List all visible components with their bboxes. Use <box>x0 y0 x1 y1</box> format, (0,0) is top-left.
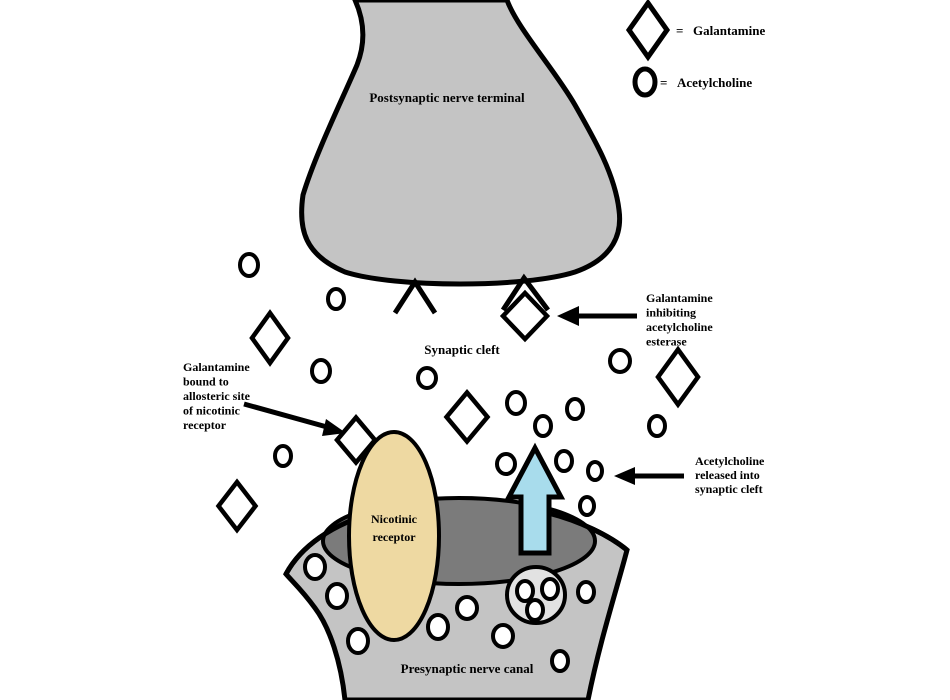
galantamine-icon <box>447 393 488 442</box>
legend-acetylcholine-label: Acetylcholine <box>677 75 752 90</box>
annotation-acetylcholine-released: Acetylcholinereleased intosynaptic cleft <box>614 454 765 496</box>
acetylcholine-icon <box>418 368 436 388</box>
acetylcholine-icon <box>497 454 515 474</box>
acetylcholine-icon <box>428 615 448 639</box>
synaptic-cleft-label: Synaptic cleft <box>424 342 500 357</box>
arrow-head-left-icon <box>614 467 635 485</box>
postsynaptic-terminal-label: Postsynaptic nerve terminal <box>369 90 525 105</box>
annotation-arrow-line <box>244 404 327 427</box>
acetylcholine-icon <box>327 584 347 608</box>
galantamine-diamond-icon <box>629 3 667 57</box>
galantamine-icon <box>252 313 288 363</box>
acetylcholine-icon <box>527 600 543 620</box>
acetylcholine-icon <box>240 254 258 276</box>
acetylcholine-oval-icon <box>635 69 655 95</box>
annotation-galantamine-allosteric-text: Galantaminebound toallosteric siteof nic… <box>183 360 251 432</box>
acetylcholine-icon <box>649 416 665 436</box>
acetylcholine-icon <box>493 625 513 647</box>
arrow-head-left-icon <box>557 306 579 326</box>
acetylcholine-icon <box>552 651 568 671</box>
acetylcholine-icon <box>312 360 330 382</box>
acetylcholine-icon <box>556 451 572 471</box>
legend-acetylcholine-eq: = <box>660 75 667 90</box>
nicotinic-receptor-label-line1: Nicotinic <box>371 512 418 526</box>
acetylcholine-icon <box>578 582 594 602</box>
legend-galantamine-eq: = <box>676 23 683 38</box>
esterase-chevron-icon <box>395 282 435 313</box>
acetylcholine-icon <box>517 581 533 601</box>
synapse-diagram: Postsynaptic nerve terminal Nicotinic re… <box>0 0 950 700</box>
postsynaptic-terminal-shape <box>302 0 620 284</box>
acetylcholine-icon <box>588 462 602 480</box>
acetylcholine-icon <box>610 350 630 372</box>
acetylcholine-icon <box>457 597 477 619</box>
acetylcholine-icon <box>580 497 594 515</box>
nicotinic-receptor-label-line2: receptor <box>372 530 416 544</box>
acetylcholine-icon <box>542 579 558 599</box>
presynaptic-canal-label: Presynaptic nerve canal <box>401 661 534 676</box>
acetylcholine-icon <box>275 446 291 466</box>
acetylcholine-icon <box>328 289 344 309</box>
annotation-galantamine-inhibiting: Galantamineinhibitingacetylcholineestera… <box>557 291 713 349</box>
galantamine-icon <box>658 350 698 405</box>
acetylcholine-icon <box>305 555 325 579</box>
annotation-acetylcholine-released-text: Acetylcholinereleased intosynaptic cleft <box>695 454 765 496</box>
galantamine-molecules-group <box>219 293 699 530</box>
acetylcholine-icon <box>535 416 551 436</box>
legend-galantamine-label: Galantamine <box>693 23 765 38</box>
galantamine-icon <box>219 482 256 530</box>
acetylcholine-icon <box>348 629 368 653</box>
acetylcholine-icon <box>507 392 525 414</box>
legend: = Galantamine = Acetylcholine <box>629 3 765 95</box>
acetylcholine-icon <box>567 399 583 419</box>
annotation-galantamine-inhibiting-text: Galantamineinhibitingacetylcholineestera… <box>646 291 713 349</box>
